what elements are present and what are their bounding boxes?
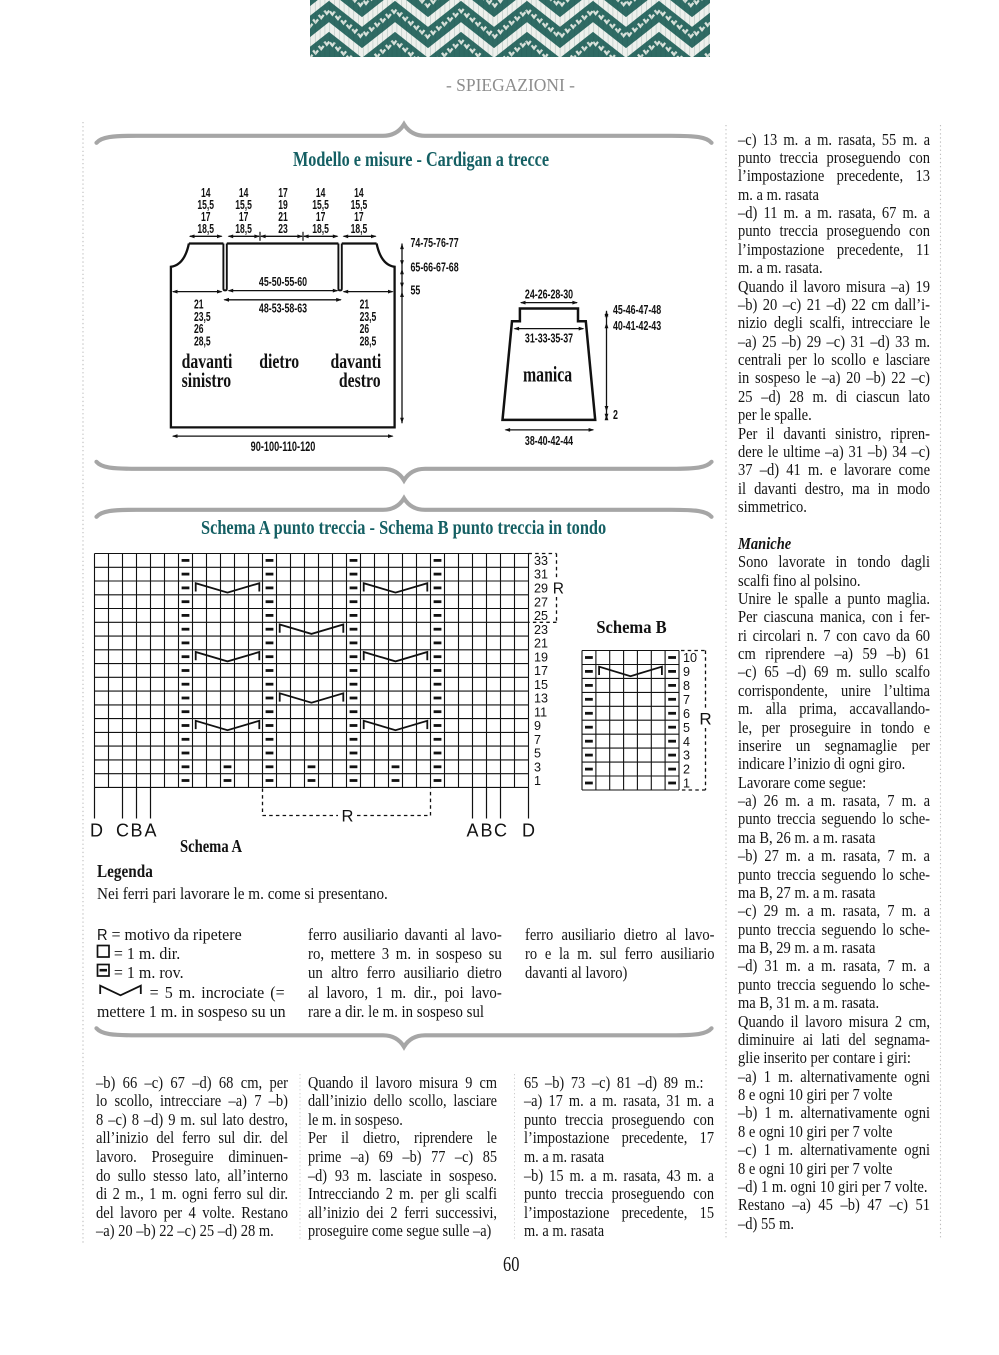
svg-text:1: 1	[683, 777, 690, 791]
svg-text:21: 21	[534, 637, 548, 651]
svg-text:10: 10	[683, 651, 697, 665]
svg-text:24-26-28-30: 24-26-28-30	[525, 288, 573, 302]
svg-text:9: 9	[534, 719, 541, 733]
svg-text:3: 3	[534, 760, 541, 774]
svg-text:D: D	[522, 821, 535, 841]
svg-text:B: B	[130, 821, 142, 841]
svg-text:23: 23	[278, 222, 288, 236]
svg-text:40-41-42-43: 40-41-42-43	[613, 319, 661, 333]
svg-text:55: 55	[411, 284, 421, 298]
svg-text:D: D	[90, 821, 103, 841]
svg-text:R: R	[342, 808, 354, 826]
svg-text:7: 7	[683, 693, 690, 707]
svg-text:29: 29	[534, 582, 548, 596]
svg-text:45-50-55-60: 45-50-55-60	[259, 276, 307, 290]
svg-text:19: 19	[534, 650, 548, 664]
svg-text:destro: destro	[339, 369, 381, 393]
svg-text:8: 8	[683, 679, 690, 693]
svg-text:18,5: 18,5	[235, 222, 252, 236]
svg-text:7: 7	[534, 733, 541, 747]
svg-text:1: 1	[534, 774, 541, 788]
svg-text:11: 11	[534, 705, 547, 719]
svg-text:9: 9	[683, 665, 690, 679]
svg-text:15: 15	[534, 678, 548, 692]
svg-text:A: A	[144, 821, 156, 841]
svg-text:A: A	[466, 821, 478, 841]
svg-text:B: B	[480, 821, 492, 841]
svg-text:5: 5	[683, 721, 690, 735]
svg-text:Schema A: Schema A	[180, 838, 242, 856]
svg-text:R: R	[699, 710, 711, 729]
svg-text:13: 13	[534, 692, 548, 706]
svg-text:R: R	[553, 581, 564, 598]
svg-text:dietro: dietro	[259, 350, 299, 374]
svg-text:25: 25	[534, 609, 548, 623]
svg-text:5: 5	[534, 747, 541, 761]
svg-text:65-66-67-68: 65-66-67-68	[411, 261, 459, 275]
svg-text:manica: manica	[523, 363, 573, 387]
svg-text:18,5: 18,5	[351, 222, 368, 236]
svg-text:6: 6	[683, 707, 690, 721]
svg-text:Schema B: Schema B	[596, 617, 667, 637]
svg-text:28,5: 28,5	[360, 335, 377, 349]
svg-text:74-75-76-77: 74-75-76-77	[411, 236, 459, 250]
svg-text:28,5: 28,5	[194, 335, 211, 349]
svg-text:4: 4	[683, 735, 690, 749]
svg-text:18,5: 18,5	[197, 222, 214, 236]
svg-text:17: 17	[534, 664, 548, 678]
svg-text:2: 2	[683, 763, 690, 777]
svg-text:2: 2	[613, 408, 618, 422]
svg-text:48-53-58-63: 48-53-58-63	[259, 302, 307, 316]
svg-text:33: 33	[534, 554, 548, 568]
svg-text:3: 3	[683, 749, 690, 763]
svg-text:sinistro: sinistro	[182, 369, 232, 393]
svg-text:C: C	[494, 821, 507, 841]
svg-text:38-40-42-44: 38-40-42-44	[525, 435, 574, 449]
svg-text:18,5: 18,5	[312, 222, 329, 236]
svg-text:C: C	[116, 821, 129, 841]
svg-text:90-100-110-120: 90-100-110-120	[251, 440, 316, 454]
svg-text:27: 27	[534, 595, 548, 609]
svg-text:31-33-35-37: 31-33-35-37	[525, 332, 573, 346]
svg-text:31: 31	[534, 568, 548, 582]
svg-text:45-46-47-48: 45-46-47-48	[613, 304, 661, 318]
svg-text:23: 23	[534, 623, 548, 637]
